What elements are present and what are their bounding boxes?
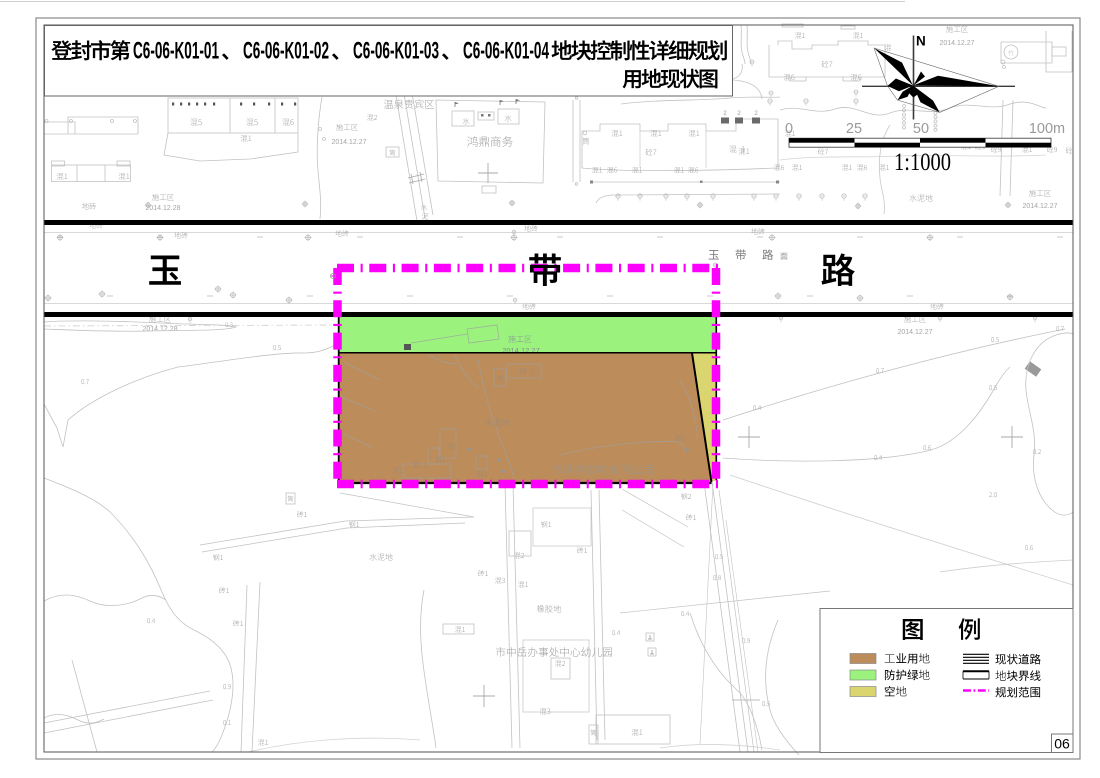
svg-text:C6-06-K01-02: C6-06-K01-02 [243,38,329,65]
svg-text:2014.12.27: 2014.12.27 [331,139,366,146]
svg-text:06: 06 [1054,736,1070,752]
svg-text:1:1000: 1:1000 [894,149,951,176]
svg-text:0: 0 [785,121,793,137]
svg-text:2014.12.27: 2014.12.27 [897,329,932,336]
svg-text:C6-06-K01-01: C6-06-K01-01 [133,38,219,65]
svg-text:2014.12.27: 2014.12.27 [939,40,974,47]
svg-text:C6-06-K01-03: C6-06-K01-03 [353,38,439,65]
svg-text:2014.12.28: 2014.12.28 [142,326,177,333]
svg-text:C6-06-K01-04: C6-06-K01-04 [463,38,549,65]
svg-text:2014.12.27: 2014.12.27 [502,346,540,355]
svg-text:2014.12.27: 2014.12.27 [1022,203,1057,210]
svg-text:25: 25 [846,121,862,137]
svg-text:N: N [916,34,926,49]
svg-text:2014.12.28: 2014.12.28 [145,205,180,212]
svg-text:100m: 100m [1029,121,1065,137]
svg-text:50: 50 [913,121,929,137]
